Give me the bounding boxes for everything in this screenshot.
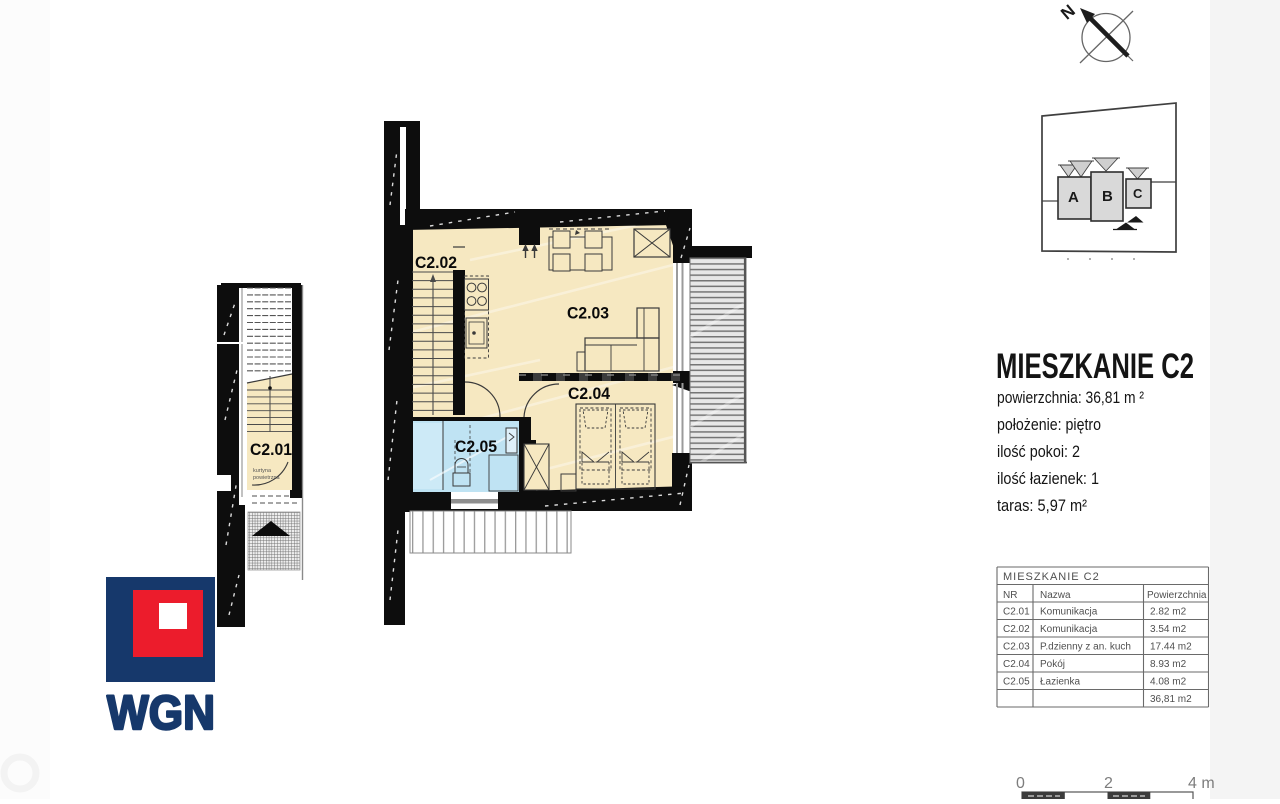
svg-text:C2.04: C2.04 — [1003, 659, 1030, 670]
svg-text:MIESZKANIE C2: MIESZKANIE C2 — [1003, 571, 1100, 583]
svg-text:C2.02: C2.02 — [1003, 624, 1030, 635]
svg-text:NR: NR — [1003, 590, 1017, 601]
svg-text:C2.03: C2.03 — [567, 305, 609, 323]
svg-text:B: B — [1102, 188, 1113, 205]
svg-text:MIESZKANIE C2: MIESZKANIE C2 — [996, 347, 1194, 386]
svg-text:ilość pokoi: 2: ilość pokoi: 2 — [997, 443, 1080, 461]
svg-text:Nazwa: Nazwa — [1040, 590, 1071, 601]
svg-text:3.54 m2: 3.54 m2 — [1150, 624, 1187, 635]
svg-text:36,81 m2: 36,81 m2 — [1150, 694, 1192, 705]
svg-text:C2.04: C2.04 — [568, 385, 611, 403]
svg-text:0: 0 — [1016, 775, 1025, 792]
svg-text:2: 2 — [1104, 775, 1113, 792]
svg-text:C2.03: C2.03 — [1003, 642, 1030, 653]
svg-text:C2.05: C2.05 — [1003, 677, 1030, 688]
svg-text:C2.01: C2.01 — [1003, 607, 1030, 618]
svg-text:Komunikacja: Komunikacja — [1040, 624, 1098, 635]
svg-text:Powierzchnia: Powierzchnia — [1147, 590, 1207, 601]
svg-text:17.44 m2: 17.44 m2 — [1150, 642, 1192, 653]
svg-text:Pokój: Pokój — [1040, 659, 1065, 670]
svg-text:WGN: WGN — [107, 687, 215, 740]
svg-text:C2.02: C2.02 — [415, 254, 457, 272]
svg-text:C2.01: C2.01 — [250, 441, 292, 459]
svg-text:kurtyna: kurtyna — [253, 468, 272, 474]
svg-text:taras: 5,97 m²: taras: 5,97 m² — [997, 497, 1087, 515]
svg-text:P.dzienny z an. kuch: P.dzienny z an. kuch — [1040, 642, 1131, 653]
svg-text:8.93 m2: 8.93 m2 — [1150, 659, 1187, 670]
svg-text:C2.05: C2.05 — [455, 438, 497, 456]
svg-text:Komunikacja: Komunikacja — [1040, 607, 1098, 618]
svg-text:powietrzna: powietrzna — [253, 475, 281, 481]
svg-text:Łazienka: Łazienka — [1040, 677, 1080, 688]
svg-text:ilość łazienek: 1: ilość łazienek: 1 — [997, 470, 1099, 488]
svg-text:powierzchnia: 36,81 m ²: powierzchnia: 36,81 m ² — [997, 389, 1144, 407]
svg-text:położenie: piętro: położenie: piętro — [997, 416, 1101, 434]
svg-text:C: C — [1133, 186, 1143, 201]
svg-text:A: A — [1068, 189, 1079, 206]
svg-text:4.08 m2: 4.08 m2 — [1150, 677, 1187, 688]
svg-text:4 m: 4 m — [1188, 775, 1215, 792]
svg-text:2.82 m2: 2.82 m2 — [1150, 607, 1187, 618]
